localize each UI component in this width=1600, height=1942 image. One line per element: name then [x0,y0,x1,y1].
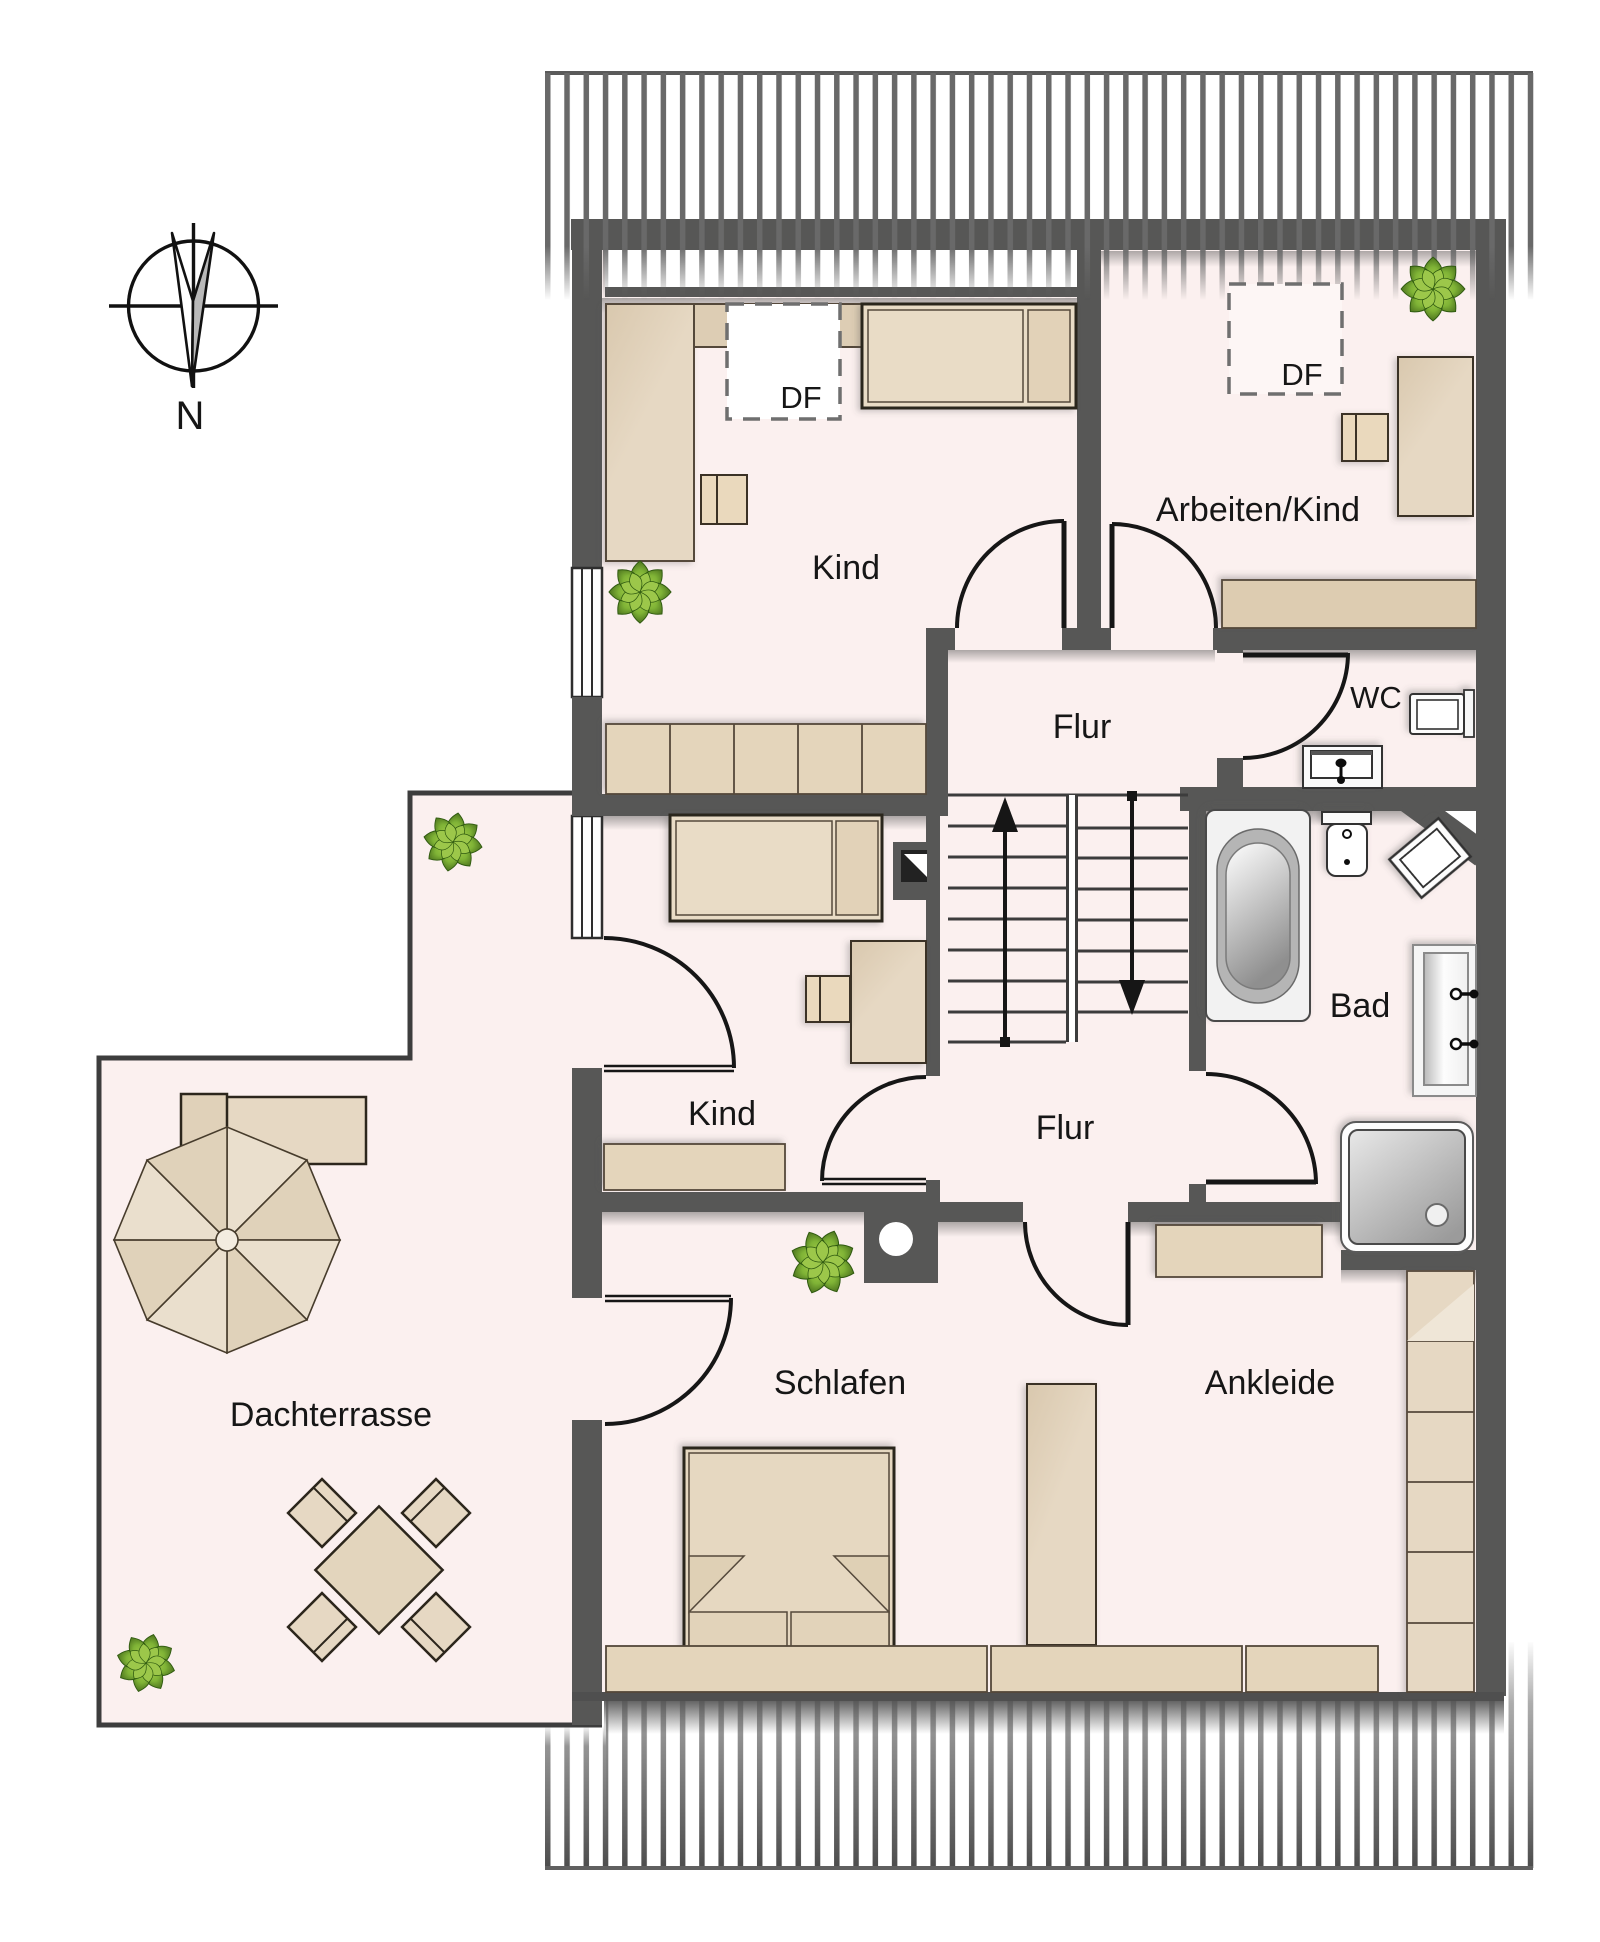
svg-text:WC: WC [1350,680,1402,715]
svg-text:DF: DF [1281,357,1322,392]
svg-text:Ankleide: Ankleide [1205,1364,1335,1402]
svg-text:N: N [176,394,205,438]
svg-text:Flur: Flur [1053,708,1112,746]
svg-text:DF: DF [780,380,821,415]
svg-text:Arbeiten/Kind: Arbeiten/Kind [1156,491,1360,529]
svg-text:Kind: Kind [812,549,880,587]
svg-text:Kind: Kind [688,1095,756,1133]
svg-text:Dachterrasse: Dachterrasse [230,1396,432,1434]
svg-text:Schlafen: Schlafen [774,1364,906,1402]
svg-text:Bad: Bad [1330,987,1391,1025]
svg-text:Flur: Flur [1036,1109,1095,1147]
